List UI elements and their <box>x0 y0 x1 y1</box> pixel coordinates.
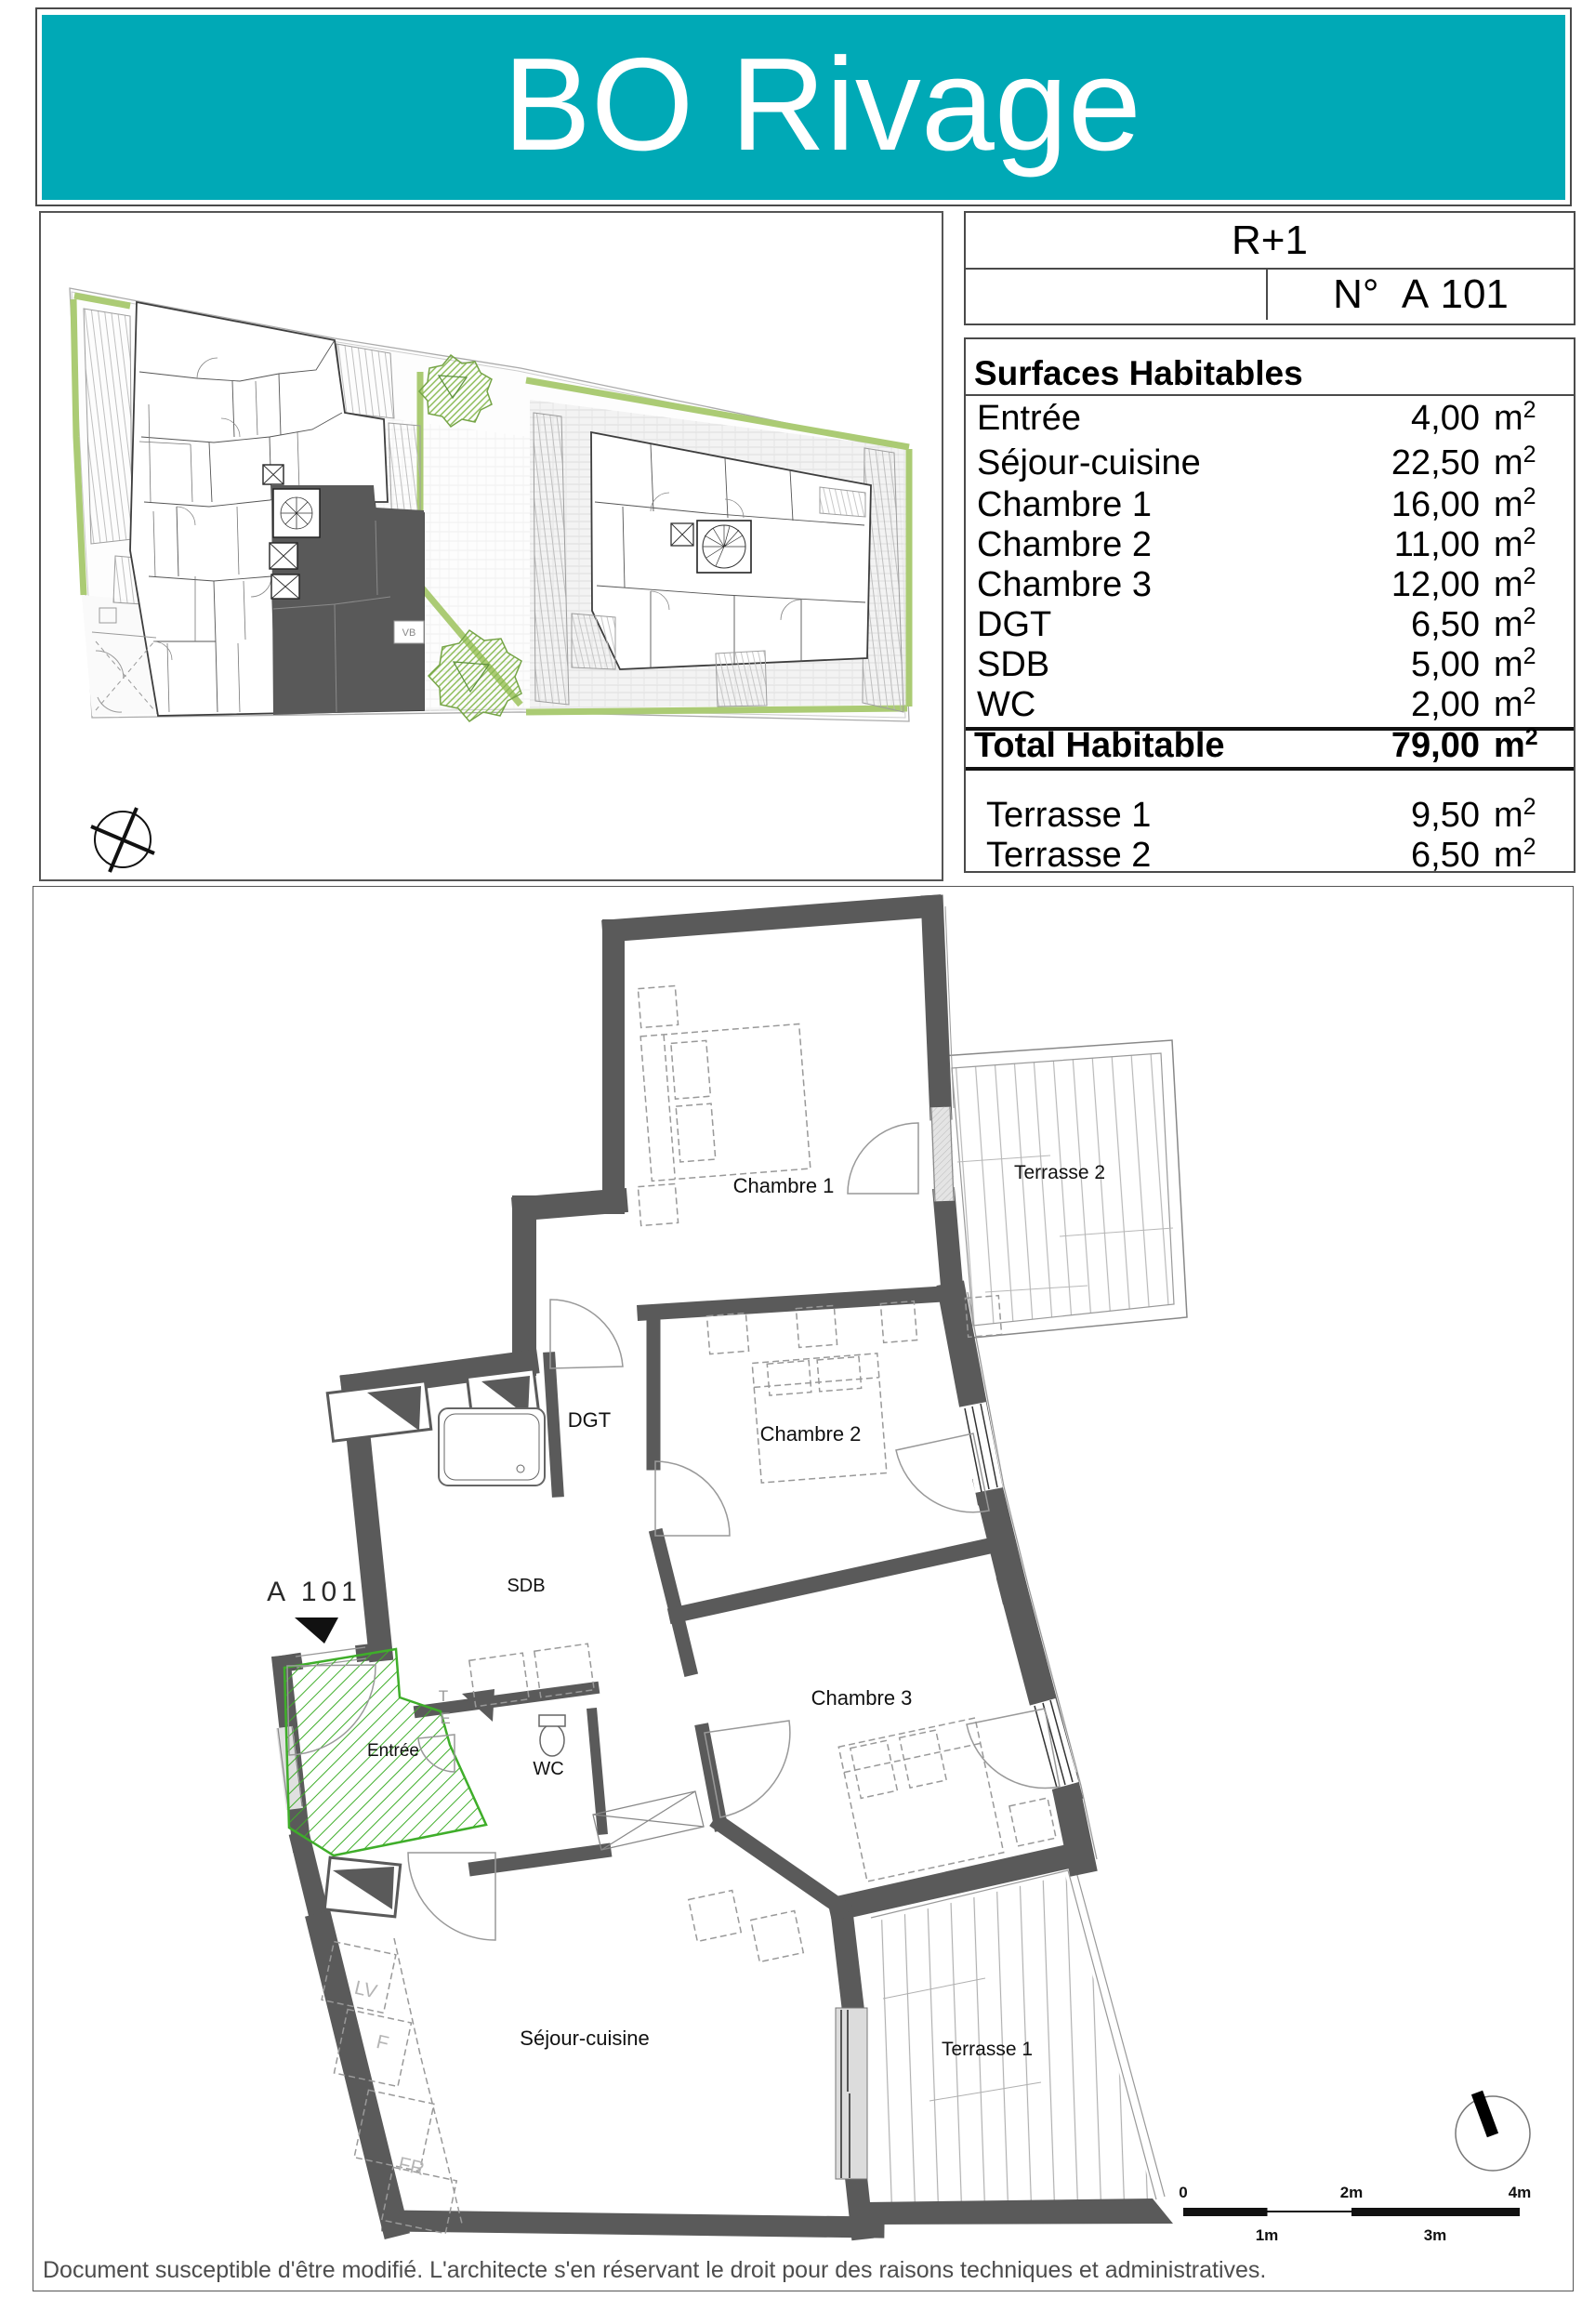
svg-text:T: T <box>439 1687 448 1705</box>
svg-text:VB: VB <box>402 627 416 639</box>
svg-text:4m: 4m <box>1509 2184 1532 2201</box>
svg-text:Chambre 3: Chambre 3 <box>811 1686 913 1710</box>
svg-text:2m: 2m <box>1340 2184 1364 2201</box>
svg-text:Terrasse 2: Terrasse 2 <box>1014 1162 1105 1183</box>
svg-text:0: 0 <box>1179 2184 1187 2201</box>
svg-text:Terrasse 1: Terrasse 1 <box>942 2039 1033 2060</box>
svg-text:E: E <box>440 1710 450 1727</box>
svg-text:Chambre 2: Chambre 2 <box>760 1422 862 1446</box>
svg-text:Entrée: Entrée <box>367 1741 419 1761</box>
svg-text:SDB: SDB <box>507 1576 545 1596</box>
svg-text:A 101: A 101 <box>267 1577 362 1607</box>
svg-text:FR: FR <box>396 2153 426 2180</box>
svg-text:LV: LV <box>352 1977 379 2003</box>
svg-text:DGT: DGT <box>568 1408 611 1432</box>
svg-text:Séjour-cuisine: Séjour-cuisine <box>520 2027 649 2050</box>
svg-text:3m: 3m <box>1424 2226 1447 2244</box>
svg-text:1m: 1m <box>1256 2226 1279 2244</box>
svg-text:F: F <box>375 2031 391 2054</box>
svg-text:Chambre 1: Chambre 1 <box>733 1174 835 1197</box>
svg-text:WC: WC <box>533 1759 563 1779</box>
